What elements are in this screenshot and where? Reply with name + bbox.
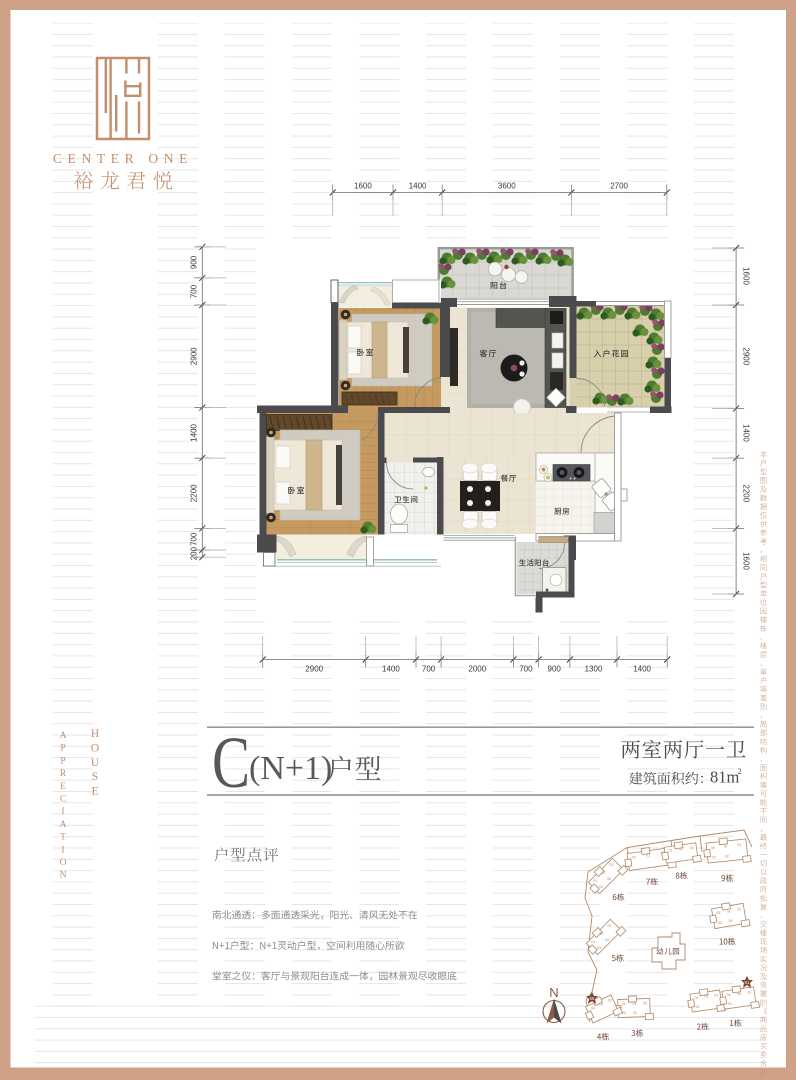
svg-text:2900: 2900 [190,347,199,365]
svg-text:04: 04 [633,1002,637,1006]
svg-text:3600: 3600 [498,182,516,191]
svg-text:700: 700 [422,665,436,674]
svg-text:I: I [61,807,64,817]
svg-text:N: N [549,985,558,1000]
svg-text:05: 05 [599,932,603,936]
svg-text:I: I [61,845,64,855]
svg-text:200: 200 [190,546,199,560]
svg-text:02: 02 [601,871,605,875]
svg-text:P: P [60,744,65,754]
svg-text:04: 04 [729,919,733,923]
svg-text:U: U [91,757,100,769]
svg-text:01: 01 [727,909,731,913]
svg-text:2200: 2200 [190,484,199,502]
svg-text:01: 01 [669,849,673,853]
svg-text:N: N [60,871,67,881]
svg-text:E: E [60,782,66,792]
svg-text:900: 900 [190,255,199,269]
svg-text:O: O [91,742,99,754]
svg-text:2900: 2900 [305,665,323,674]
svg-text:03: 03 [712,856,716,860]
svg-text:03: 03 [597,946,601,950]
svg-text:2200: 2200 [742,484,751,502]
svg-text:(N+1): (N+1) [249,750,332,787]
svg-text:03: 03 [718,921,722,925]
svg-text:03: 03 [609,863,613,867]
svg-text:01: 01 [745,980,750,985]
svg-text:04: 04 [591,1007,595,1011]
svg-text:02: 02 [737,907,741,911]
svg-text:C: C [212,723,250,803]
svg-text:03: 03 [599,1003,603,1007]
svg-text:1300: 1300 [585,665,603,674]
svg-text:A: A [60,820,67,830]
svg-text:05: 05 [737,992,741,996]
svg-text:02: 02 [605,938,609,942]
svg-text:1600: 1600 [354,182,372,191]
svg-text:04: 04 [607,924,611,928]
svg-text:S: S [92,771,98,783]
svg-text:03: 03 [714,993,718,997]
svg-text:01: 01 [591,940,595,944]
svg-text:R: R [60,769,67,779]
svg-text:P: P [60,756,65,766]
svg-text:02: 02 [622,1011,626,1015]
svg-text:05: 05 [590,996,595,1001]
svg-text:1400: 1400 [409,182,427,191]
svg-text:05: 05 [711,846,715,850]
svg-text:700: 700 [519,665,533,674]
svg-text:02: 02 [725,854,729,858]
svg-text:2900: 2900 [742,347,751,365]
svg-text:700: 700 [190,284,199,298]
svg-text:01: 01 [622,1002,626,1006]
svg-text:1400: 1400 [633,665,651,674]
svg-text:04: 04 [695,996,699,1000]
svg-text:CENTER ONE: CENTER ONE [53,151,193,166]
svg-text:04: 04 [599,885,603,889]
svg-text:E: E [91,786,98,798]
svg-text:06: 06 [607,877,611,881]
svg-text:2700: 2700 [610,182,628,191]
svg-text:01: 01 [724,844,728,848]
svg-text:O: O [60,858,67,868]
svg-text:1600: 1600 [742,267,751,285]
svg-text:02: 02 [696,1005,700,1009]
svg-text:1400: 1400 [382,665,400,674]
svg-text:01: 01 [748,990,752,994]
svg-text:04: 04 [727,993,731,997]
svg-text:01: 01 [593,879,597,883]
svg-text:03: 03 [690,846,694,850]
svg-text:81m: 81m [710,768,740,787]
svg-text:03: 03 [633,1011,637,1015]
svg-text:1600: 1600 [742,552,751,570]
svg-text:05: 05 [716,911,720,915]
svg-text:C: C [60,795,66,805]
svg-text:700: 700 [190,532,199,546]
svg-text:2000: 2000 [468,665,486,674]
svg-text:H: H [91,728,99,740]
svg-text:02: 02 [679,847,683,851]
svg-text:2: 2 [738,766,742,776]
svg-text:T: T [60,833,66,843]
svg-text:03: 03 [632,855,636,859]
svg-text:02: 02 [608,999,612,1003]
svg-text:05: 05 [643,1001,647,1005]
svg-text:A: A [60,731,67,741]
svg-text:1400: 1400 [190,423,199,441]
svg-text:1400: 1400 [742,424,751,442]
svg-text:01: 01 [646,853,650,857]
svg-text:01: 01 [704,995,708,999]
svg-text:900: 900 [548,665,562,674]
svg-text:04: 04 [737,843,741,847]
svg-text:03: 03 [728,1002,732,1006]
